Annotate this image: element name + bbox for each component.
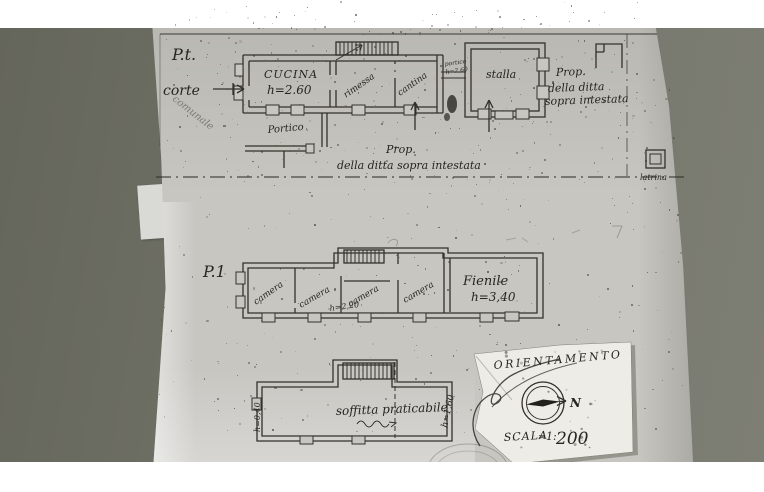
latrine-symbol	[646, 150, 665, 168]
scale-value: 200	[555, 429, 589, 449]
bedroom2-label: camera	[298, 285, 332, 311]
hayloft-label: Fienile	[462, 274, 509, 289]
annex-outline	[596, 44, 622, 68]
diagonal-note: comunale	[170, 94, 215, 133]
shed-label: rimessa	[342, 72, 377, 101]
bedroom4-label: camera	[402, 280, 436, 306]
bedroom3-label: camera	[347, 284, 381, 310]
level-label-first: P.1	[202, 262, 226, 281]
floorplan-drawing: P.t. corte comunale CUCINA h=2.60 rimess…	[0, 0, 764, 492]
photo-of-floorplan-document: P.t. corte comunale CUCINA h=2.60 rimess…	[0, 0, 764, 492]
north-label: N	[569, 396, 582, 410]
stair-hatch-ground	[336, 42, 398, 55]
bedroom1-label: camera	[252, 280, 286, 308]
orientation-patch: ORIENTAMENTO N SCALA = 1: 200	[473, 342, 638, 468]
prop-note-center-1: Prop.	[385, 143, 416, 156]
attic-label: soffitta praticabile	[336, 400, 448, 418]
ground-floor-plan: P.t. corte comunale CUCINA h=2.60 rimess…	[163, 42, 667, 182]
squiggle-arrow	[357, 421, 396, 427]
prop-note-side-1: Prop.	[555, 65, 586, 79]
hayloft-opening	[505, 312, 519, 321]
first-floor-plan: P.1 camera camera h=2,20 camera camera F…	[202, 248, 543, 322]
level-label-ground: P.t.	[171, 45, 196, 64]
cellar-label: cantina	[396, 71, 429, 99]
hayloft-height: h=3,40	[471, 290, 516, 304]
stable-label: stalla	[486, 68, 516, 81]
kitchen-label: CUCINA	[264, 68, 318, 81]
prop-note-side-3: sopra intestata	[545, 92, 629, 108]
scale-eq: =	[538, 433, 546, 443]
porch-label: Portico	[266, 122, 304, 136]
attic-height-left: h=0,40	[253, 402, 262, 432]
stair-hatch-first	[344, 250, 384, 263]
entry-arrow-cellar	[411, 102, 419, 130]
attic-height-right: h=1,60	[440, 394, 457, 429]
latrine-label: latrina	[640, 173, 667, 182]
window	[235, 64, 243, 76]
prop-note-center-2: della ditta sopra intestata	[337, 159, 481, 172]
kitchen-height: h=2.60	[267, 83, 312, 97]
ink-blob	[447, 95, 457, 113]
attic-plan: soffitta praticabile h=0,40 h=1,60	[252, 360, 457, 444]
